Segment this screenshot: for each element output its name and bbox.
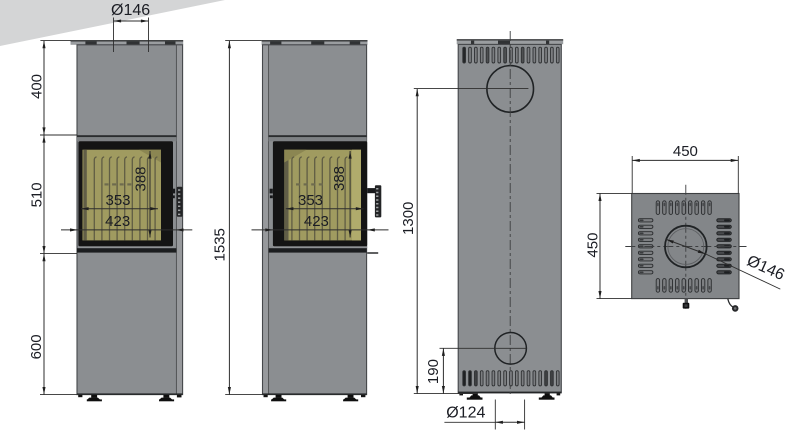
- svg-text:388: 388: [331, 166, 348, 191]
- svg-text:450: 450: [584, 233, 601, 258]
- svg-text:388: 388: [133, 166, 150, 191]
- svg-text:190: 190: [425, 359, 442, 384]
- svg-text:353: 353: [298, 192, 323, 209]
- svg-text:510: 510: [28, 182, 45, 207]
- svg-text:353: 353: [105, 192, 130, 209]
- svg-text:1535: 1535: [211, 228, 228, 261]
- svg-text:400: 400: [29, 74, 46, 99]
- svg-text:423: 423: [304, 213, 329, 230]
- svg-text:Ø146: Ø146: [111, 2, 150, 19]
- svg-text:1300: 1300: [400, 202, 417, 235]
- svg-text:450: 450: [673, 143, 698, 160]
- svg-text:600: 600: [28, 334, 45, 359]
- svg-text:Ø124: Ø124: [446, 405, 485, 422]
- svg-text:423: 423: [105, 213, 130, 230]
